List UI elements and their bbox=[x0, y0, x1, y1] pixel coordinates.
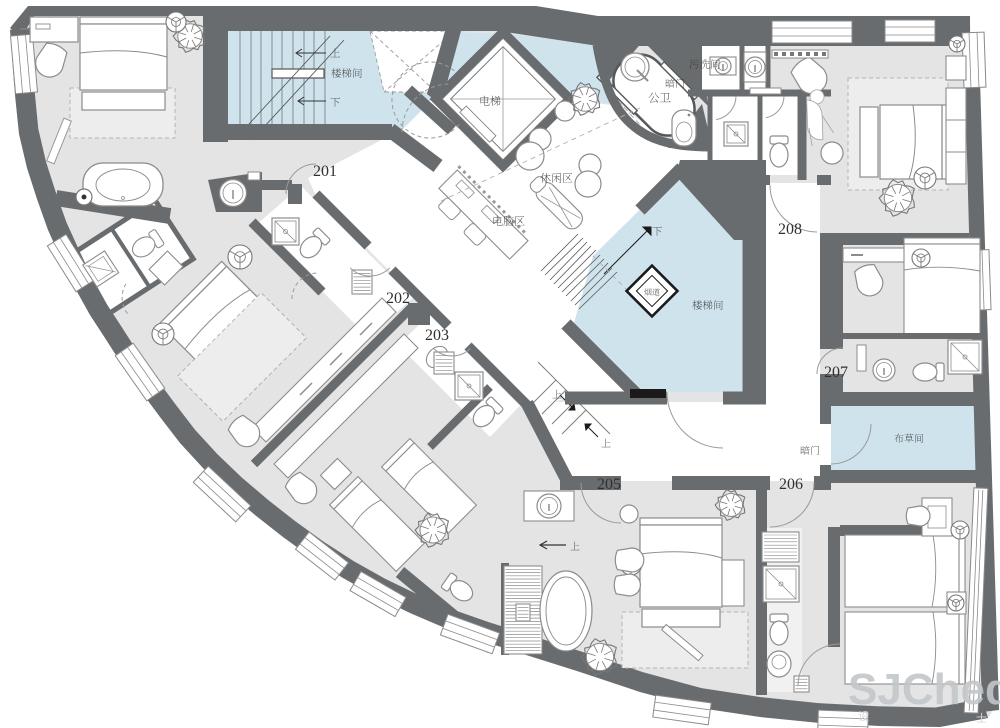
svg-text:士: 士 bbox=[976, 712, 987, 725]
svg-text:203: 203 bbox=[425, 327, 449, 344]
svg-text:207: 207 bbox=[824, 364, 848, 381]
svg-text:208: 208 bbox=[778, 221, 802, 238]
svg-text:205: 205 bbox=[597, 476, 621, 493]
svg-text:SJChede: SJChede bbox=[848, 665, 1000, 714]
svg-text:202: 202 bbox=[386, 290, 410, 307]
svg-text:201: 201 bbox=[313, 163, 337, 180]
svg-text:206: 206 bbox=[779, 476, 803, 493]
svg-text:设: 设 bbox=[858, 710, 869, 723]
